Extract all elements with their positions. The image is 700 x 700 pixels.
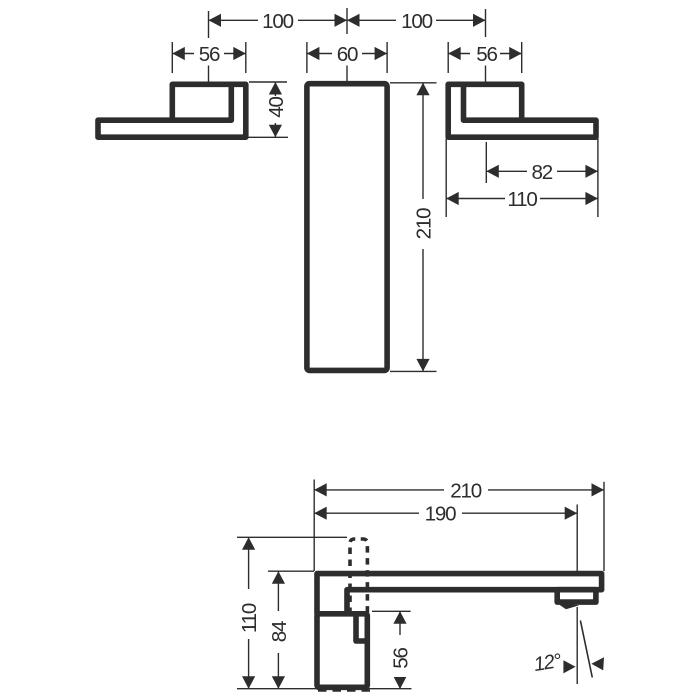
svg-text:84: 84 <box>268 621 291 642</box>
svg-text:56: 56 <box>476 43 497 66</box>
svg-text:110: 110 <box>507 188 537 211</box>
svg-text:12°: 12° <box>532 650 563 676</box>
svg-text:60: 60 <box>337 43 358 66</box>
svg-text:100: 100 <box>262 10 294 33</box>
svg-text:190: 190 <box>425 503 457 526</box>
svg-text:100: 100 <box>401 10 433 33</box>
svg-text:40: 40 <box>265 97 288 118</box>
svg-text:82: 82 <box>532 161 553 184</box>
svg-text:210: 210 <box>413 208 436 240</box>
svg-text:56: 56 <box>199 43 220 66</box>
svg-text:110: 110 <box>238 603 261 633</box>
svg-text:210: 210 <box>450 479 482 502</box>
svg-text:56: 56 <box>390 648 413 669</box>
